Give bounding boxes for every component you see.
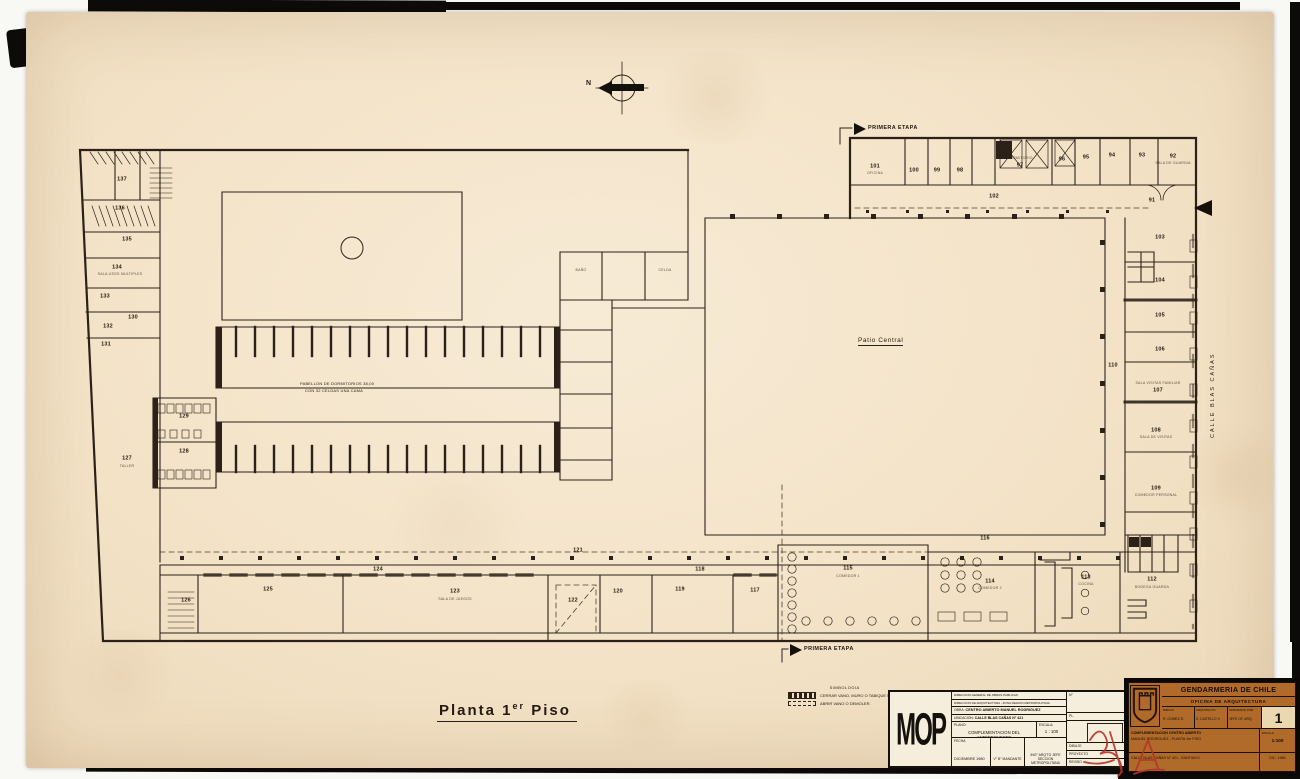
plan-rect: [453, 556, 457, 560]
plan-line: [106, 206, 113, 226]
legend-item-new-wall: CERRAR VANO, MURO O TABIQUE NUEVO: [788, 692, 901, 699]
mop-jefe-cell: ING° ARQ'TO JEFE SECCION METROPOLITANA: [1024, 738, 1066, 766]
tb-col-label: APROBADO POR: [1229, 708, 1260, 712]
tb-escala-label: ESCALA: [1262, 731, 1293, 735]
mop-fecha-value: DICIEMBRE 1980: [954, 757, 988, 761]
tb-escala-cell: ESCALA 1:100: [1259, 729, 1295, 753]
table-circle: [1081, 571, 1089, 579]
plan-rect: [176, 404, 183, 413]
patio-central-label: Patio Central: [858, 337, 903, 346]
legend-item-demolish: ABRIR VANO O DEMOLER.: [788, 701, 901, 706]
plan-rect: [918, 214, 923, 219]
plan-rect: [375, 556, 379, 560]
mop-escala-cell: ESCALA: 1 : 100: [1036, 722, 1066, 738]
mop-escala-value: 1 : 100: [1039, 729, 1064, 734]
plan-rect: [906, 210, 909, 213]
plan-line: [106, 152, 114, 164]
plan-rect: [258, 556, 262, 560]
mop-plano-label: PLANO:: [954, 723, 1034, 727]
table-circle: [846, 617, 854, 625]
plan-rect: [203, 470, 210, 479]
floor-plan-drawing: [0, 0, 1300, 779]
thick-walls: [1125, 300, 1196, 402]
plan-line: [141, 206, 148, 226]
plan-rect: [185, 404, 192, 413]
plan-rect: [1026, 210, 1029, 213]
mop-jefe-line2: SECCION METROPOLITANA: [1027, 757, 1064, 765]
mop-ubicacion-label: UBICACION:: [954, 716, 974, 720]
plan-rect: [938, 612, 955, 621]
plan-rect: [531, 556, 535, 560]
plan-rect: [866, 210, 869, 213]
tb-col-value: R. GOMEZ S.: [1163, 717, 1193, 721]
plan-rect: [946, 210, 949, 213]
wall-endcaps: [153, 141, 1151, 547]
door-arcs: [1146, 185, 1178, 200]
table-circle: [973, 584, 981, 592]
mop-num-label: N°: [1069, 693, 1073, 697]
scanned-floor-plan: 9192939495969798991001011021031041051061…: [0, 0, 1300, 779]
mop-dept-line2: DIRECCION DE ARQUITECTURA - ZONA REGION …: [952, 700, 1066, 707]
plan-rect: [194, 404, 201, 413]
plan-rect: [414, 556, 418, 560]
plan-title-prefix: Planta 1: [439, 702, 513, 719]
table-circle: [957, 584, 965, 592]
mop-plano-value: COMPLEMENTACION DEL ANTEPROYECTO: [954, 730, 1034, 738]
fountain-circle: [341, 237, 363, 259]
plan-title-suffix: Piso: [525, 702, 571, 719]
tb-col-aprobado: APROBADO POR JEFE OF. ARQ.: [1228, 707, 1262, 729]
plan-rect: [1100, 240, 1105, 245]
plan-rect: [570, 556, 574, 560]
plan-rect: [1100, 522, 1105, 527]
table-circle: [788, 553, 796, 561]
mop-pl-label: PL.: [1069, 714, 1074, 718]
office-name: OFICINA DE ARQUITECTURA: [1162, 697, 1295, 707]
plan-rect: [297, 556, 301, 560]
tb-col-arquitecto: ARQUITECTO S. CASTILLO V.: [1195, 707, 1228, 729]
plan-rect: [182, 430, 189, 438]
plan-rect: [194, 430, 201, 438]
mop-ubicacion-row: UBICACION: CALLE BLAS CAÑAS N° 421: [952, 715, 1066, 722]
mop-num-box: N°: [1066, 692, 1124, 712]
plan-rect: [185, 470, 192, 479]
plan-rect: [990, 612, 1007, 621]
plan-line: [99, 206, 106, 226]
plan-rect: [1059, 214, 1064, 219]
plan-rect: [1100, 381, 1105, 386]
crest-box: [1130, 685, 1160, 727]
mop-mandante-cell: V° B° MANDANTE: [990, 738, 1024, 766]
plan-rect: [824, 214, 829, 219]
plan-rect: [194, 470, 201, 479]
plan-rect: [726, 556, 730, 560]
plan-line: [130, 152, 138, 164]
legend-swatch-dashed: [788, 701, 816, 706]
plan-rect: [492, 556, 496, 560]
plan-rect: [648, 556, 652, 560]
plan-rect: [986, 210, 989, 213]
table-circle: [941, 584, 949, 592]
tb-col-dibujo: DIBUJO R. GOMEZ S.: [1162, 707, 1195, 729]
north-arrow: [596, 62, 648, 114]
plan-line: [120, 206, 127, 226]
org-name: GENDARMERIA DE CHILE: [1162, 683, 1295, 697]
plan-rect: [170, 430, 177, 438]
pavilion-note-2: CON 32 CELDAS UNA CAMA: [305, 388, 363, 393]
pavilion-note-1: PABELLON DE DORMITORIOS 38,00: [300, 381, 374, 386]
table-circle: [1081, 589, 1089, 597]
north-label: N: [586, 80, 591, 87]
mop-dept-line1: DIRECCION GENERAL DE OBRAS PUBLICAS: [952, 692, 1066, 700]
plan-rect: [1116, 556, 1120, 560]
table-circle: [802, 617, 810, 625]
tb-col-label: DIBUJO: [1163, 708, 1193, 712]
stage-marker-top: [840, 123, 866, 144]
plan-rect: [167, 470, 174, 479]
plan-rect: [765, 556, 769, 560]
plan-rect: [1066, 210, 1069, 213]
tb-escala-value: 1:100: [1262, 738, 1293, 743]
plan-rect: [999, 556, 1003, 560]
plan-rect: [336, 556, 340, 560]
tb-col-value: JEFE OF. ARQ.: [1229, 717, 1260, 721]
mop-fecha-cell: FECHA DICIEMBRE 1980: [952, 738, 990, 766]
table-circle: [868, 617, 876, 625]
tb-col-label: ARQUITECTO: [1196, 708, 1226, 712]
legend: SIMBOLOGIA CERRAR VANO, MURO O TABIQUE N…: [788, 685, 901, 706]
plan-rect: [965, 214, 970, 219]
plan-rect: [1100, 428, 1105, 433]
mop-obra-value: CENTRO ABIERTO MANUEL RODRIGUEZ: [966, 708, 1041, 712]
plan-rect: [871, 214, 876, 219]
table-circle: [788, 589, 796, 597]
interior-walls: [83, 138, 1196, 641]
plan-rect: [843, 556, 847, 560]
plan-rect: [1106, 210, 1109, 213]
plan-rect: [1100, 334, 1105, 339]
mop-obra-row: OBRA: CENTRO ABIERTO MANUEL RODRIGUEZ: [952, 707, 1066, 715]
mop-obra-label: OBRA:: [954, 708, 965, 712]
plan-line: [138, 152, 146, 164]
plan-rect: [1012, 214, 1017, 219]
plan-line: [146, 152, 154, 164]
table-circle: [788, 577, 796, 585]
mop-logo: MOP: [890, 692, 952, 766]
plan-rect: [158, 404, 165, 413]
plan-rect: [219, 556, 223, 560]
mop-escala-label: ESCALA:: [1039, 723, 1064, 727]
mop-mandante-label: V° B° MANDANTE: [993, 757, 1022, 761]
plan-rect: [921, 556, 925, 560]
stage-label-top: PRIMERA ETAPA: [868, 125, 918, 131]
legend-swatch-solid: [788, 692, 816, 699]
table-circle: [890, 617, 898, 625]
plan-rect: [1077, 556, 1081, 560]
plan-rect: [609, 556, 613, 560]
plan-title: Planta 1er Piso: [437, 701, 577, 722]
plan-rect: [777, 214, 782, 219]
mop-pl-box: PL.: [1066, 712, 1124, 720]
plan-line: [122, 152, 130, 164]
table-circle: [973, 571, 981, 579]
table-circle: [1081, 607, 1089, 615]
mop-ubicacion-value: CALLE BLAS CAÑAS N° 421: [975, 716, 1024, 720]
table-circle: [788, 625, 796, 633]
plan-rect: [804, 556, 808, 560]
table-circle: [788, 601, 796, 609]
street-name-label: CALLE BLAS CAÑAS: [1210, 328, 1216, 438]
plan-rect: [167, 404, 174, 413]
stage-marker-bottom: [782, 644, 802, 662]
tb-col-value: S. CASTILLO V.: [1196, 717, 1226, 721]
plan-line: [98, 152, 106, 164]
table-circle: [941, 571, 949, 579]
table-circle: [912, 617, 920, 625]
plan-rect: [730, 214, 735, 219]
table-circle: [788, 613, 796, 621]
red-signature-initials: [1128, 730, 1172, 778]
plan-rect: [882, 556, 886, 560]
legend-label: ABRIR VANO O DEMOLER.: [820, 701, 871, 706]
plan-line: [113, 206, 120, 226]
legend-title: SIMBOLOGIA: [788, 685, 901, 690]
plan-rect: [180, 556, 184, 560]
plan-rect: [964, 612, 981, 621]
sheet-number: 1: [1262, 707, 1295, 729]
table-circle: [957, 571, 965, 579]
mop-fecha-label: FECHA: [954, 739, 988, 743]
plan-rect: [158, 470, 165, 479]
plan-rect: [158, 430, 165, 438]
stage-label-bottom: PRIMERA ETAPA: [804, 646, 854, 652]
tb-fecha: DIC. 1980: [1259, 753, 1295, 771]
plan-rect: [203, 404, 210, 413]
plan-line: [127, 206, 134, 226]
table-circle: [788, 565, 796, 573]
plan-line: [134, 206, 141, 226]
plan-line: [148, 206, 155, 226]
plan-rect: [1100, 475, 1105, 480]
plan-title-sup: er: [513, 701, 526, 711]
table-circle: [824, 617, 832, 625]
red-signature-scribble: [1076, 722, 1136, 779]
plan-rect: [1100, 287, 1105, 292]
plan-rect: [176, 470, 183, 479]
gendarmeria-crest-icon: [1131, 686, 1159, 725]
plan-line: [90, 152, 98, 164]
plan-rect: [1038, 556, 1042, 560]
plan-rect: [687, 556, 691, 560]
mop-logo-text: MOP: [896, 702, 945, 756]
plan-line: [92, 206, 99, 226]
mop-plano-cell: PLANO: COMPLEMENTACION DEL ANTEPROYECTO: [952, 722, 1036, 738]
